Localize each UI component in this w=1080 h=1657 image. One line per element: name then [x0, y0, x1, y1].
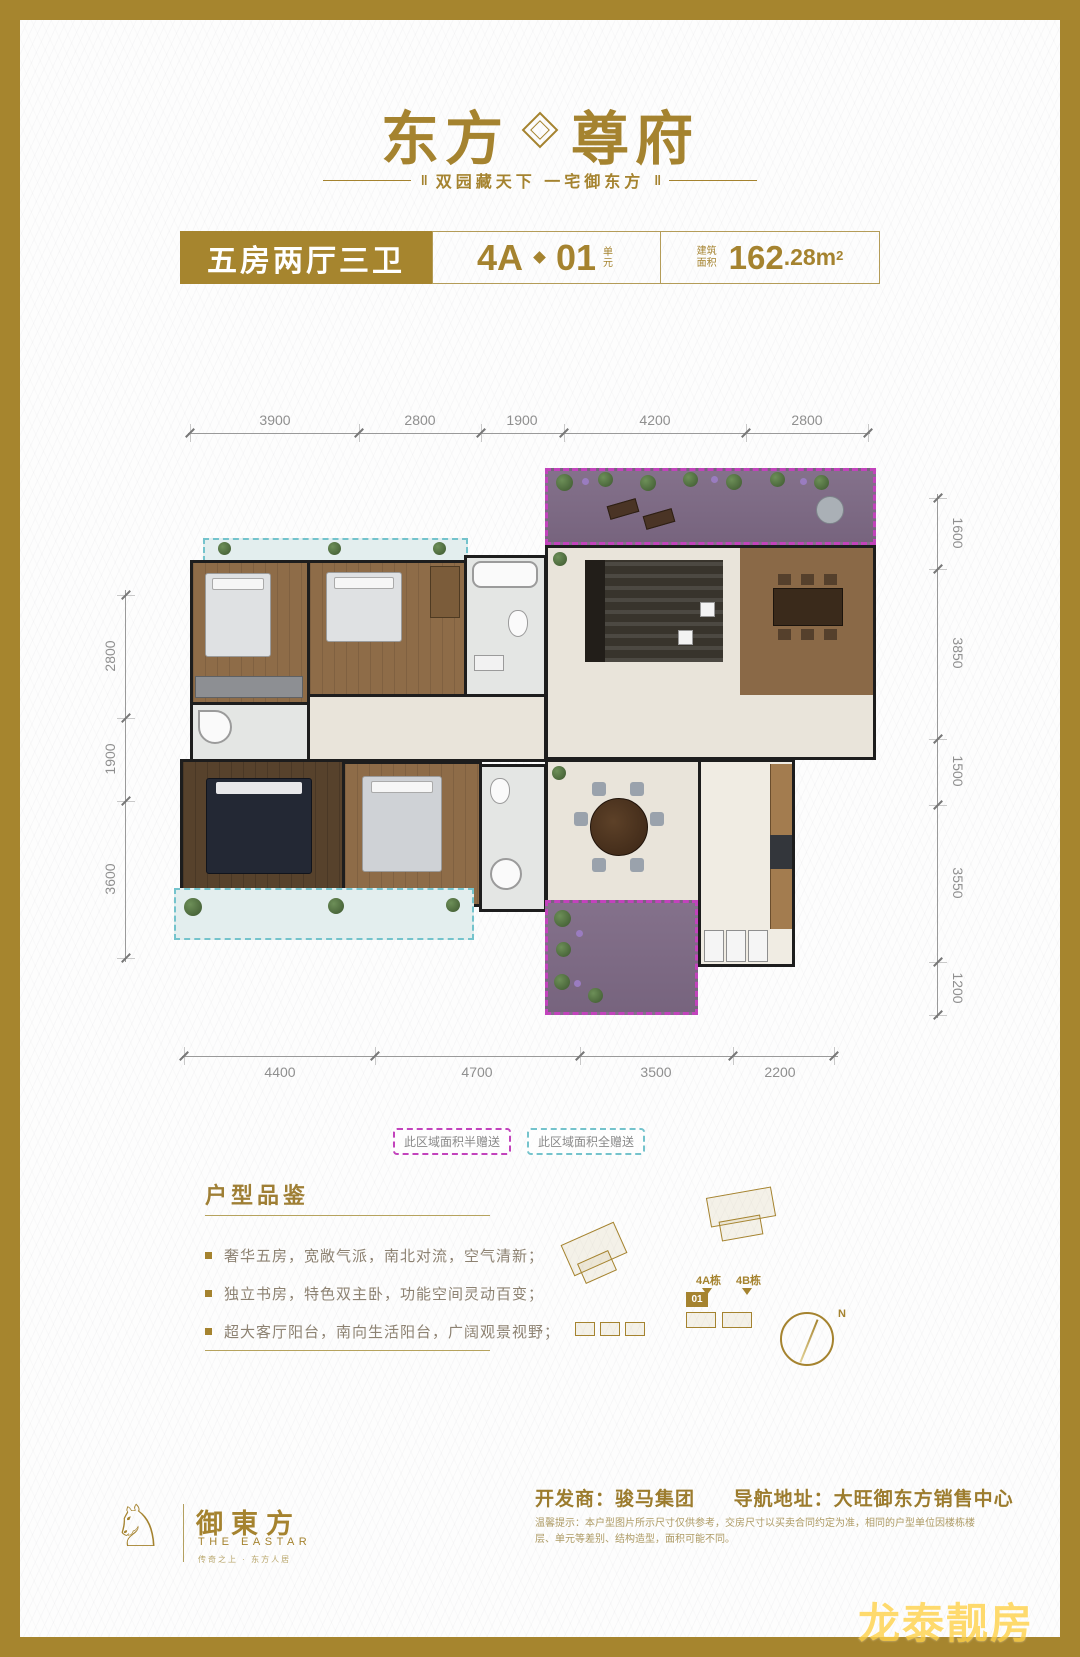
spec-box: 4A 01 单元 建筑面积 162 .28 m 2	[432, 231, 880, 284]
unit-section: 4A 01 单元	[433, 232, 661, 283]
developer-info: 开发商：骏马集团	[535, 1489, 695, 1510]
unit-label: 单元	[603, 247, 616, 269]
flower-icon	[582, 478, 589, 485]
chair	[630, 782, 644, 796]
tower-4b-label: 4B栋	[736, 1272, 761, 1288]
site-building	[686, 1312, 716, 1328]
dim-right-2: 3850	[950, 623, 966, 683]
disclaimer-text: 温馨提示：本户型图片所示尺寸仅供参考，交房尺寸以买卖合同约定为准，相同的户型单位…	[535, 1516, 987, 1548]
compass-north-label: N	[838, 1308, 846, 1320]
dim-right-4: 3550	[950, 853, 966, 913]
chair	[574, 812, 588, 826]
chair	[592, 858, 606, 872]
feature-item-1: 奢华五房，宽敞气派，南北对流，空气清新；	[205, 1245, 544, 1266]
dim-right-5: 1200	[950, 958, 966, 1018]
stove	[770, 835, 792, 869]
features-title: 户型品鉴	[205, 1178, 309, 1210]
area-int: 162	[729, 239, 784, 277]
dim-bottom-1: 4400	[250, 1064, 310, 1080]
site-building	[722, 1312, 752, 1328]
chair	[630, 858, 644, 872]
balcony-table	[816, 496, 844, 524]
plant-icon	[556, 474, 573, 491]
area-unit: m	[816, 244, 836, 271]
dim-top-1: 3900	[245, 412, 305, 428]
feature-text-1: 奢华五房，宽敞气派，南北对流，空气清新；	[224, 1245, 544, 1266]
dim-right-1: 1600	[950, 503, 966, 563]
bullet-icon	[205, 1252, 212, 1259]
pillow	[371, 781, 433, 793]
unit-01-tag: 01	[686, 1292, 708, 1307]
dim-line-bottom	[182, 1056, 838, 1057]
dining-table	[773, 588, 843, 626]
plant-icon	[554, 974, 570, 990]
brand-diamond-icon	[522, 112, 559, 149]
plant-icon	[553, 552, 567, 566]
legend-full-gift: 此区域面积全赠送	[527, 1128, 645, 1155]
dim-left-2: 1900	[102, 729, 118, 789]
tagline-rule-left	[323, 180, 411, 181]
flower-icon	[576, 930, 583, 937]
plant-icon	[552, 766, 566, 780]
compass-icon	[780, 1312, 834, 1366]
flower-icon	[711, 476, 718, 483]
navigation-info: 导航地址：大旺御东方销售中心	[734, 1489, 1014, 1510]
pillow	[216, 782, 302, 794]
layout-title: 五房两厅三卫	[180, 231, 432, 284]
plant-icon	[726, 474, 742, 490]
footer-logo-sub: 传奇之上 · 东方人居	[198, 1554, 291, 1565]
chair	[778, 629, 791, 640]
armchair	[678, 630, 693, 645]
compass-needle	[799, 1319, 818, 1362]
pillow	[212, 578, 263, 590]
chair	[824, 629, 837, 640]
feature-item-2: 独立书房，特色双主卧，功能空间灵动百变；	[205, 1283, 544, 1304]
bed	[326, 572, 402, 642]
dim-bottom-3: 3500	[626, 1064, 686, 1080]
chair	[778, 574, 791, 585]
footer-logo-en: THE EASTAR	[198, 1536, 311, 1548]
dim-bottom-4: 2200	[750, 1064, 810, 1080]
dim-bottom-2: 4700	[447, 1064, 507, 1080]
appliance	[748, 930, 768, 962]
room-bath-3	[479, 764, 547, 912]
desk	[430, 566, 460, 618]
dim-top-2: 2800	[390, 412, 450, 428]
area-label: 建筑面积	[697, 246, 721, 270]
tagline-bars-right-icon: ‖	[654, 172, 659, 188]
unit-number: 01	[556, 237, 596, 279]
plant-icon	[554, 910, 571, 927]
plant-icon	[218, 542, 231, 555]
bullet-icon	[205, 1328, 212, 1335]
plant-icon	[598, 472, 613, 487]
unit-block: 4A	[477, 237, 523, 279]
toilet	[508, 610, 528, 637]
tagline-bars-left-icon: ‖	[421, 172, 426, 188]
poster-page: 东方尊府 ‖ 双园藏天下 一宅御东方 ‖ 五房两厅三卫 4A 01 单元 建筑面…	[0, 0, 1080, 1657]
brand-name-right: 尊府	[571, 92, 699, 176]
site-building	[600, 1322, 620, 1336]
toilet	[490, 778, 510, 804]
appliance	[726, 930, 746, 962]
shower	[490, 858, 522, 890]
plant-icon	[683, 472, 698, 487]
plant-icon	[446, 898, 460, 912]
plant-icon	[328, 542, 341, 555]
dim-top-4: 4200	[625, 412, 685, 428]
unit-diamond-icon	[533, 251, 546, 264]
chair	[592, 782, 606, 796]
flower-icon	[800, 478, 807, 485]
features-rule-bottom	[205, 1350, 490, 1351]
feature-text-2: 独立书房，特色双主卧，功能空间灵动百变；	[224, 1283, 544, 1304]
corridor	[307, 694, 547, 762]
plant-icon	[640, 475, 656, 491]
brand-name-left: 东方	[381, 92, 509, 176]
dim-line-left	[125, 590, 126, 962]
flower-icon	[574, 980, 581, 987]
sink	[474, 655, 504, 671]
dim-right-3: 1500	[950, 741, 966, 801]
watermark: 龙泰靓房	[858, 1590, 1034, 1651]
tower-4a-label: 4A栋	[696, 1272, 721, 1288]
corner-tub	[198, 710, 232, 744]
dim-top-5: 2800	[777, 412, 837, 428]
plant-icon	[184, 898, 202, 916]
appliance	[704, 930, 724, 962]
chair	[801, 574, 814, 585]
site-building	[625, 1322, 645, 1336]
area-dec: .28	[784, 244, 816, 271]
plant-icon	[588, 988, 603, 1003]
features-rule-top	[205, 1215, 490, 1216]
dim-top-3: 1900	[492, 412, 552, 428]
chair	[801, 629, 814, 640]
plant-icon	[328, 898, 344, 914]
poster-inner: 东方尊府 ‖ 双园藏天下 一宅御东方 ‖ 五房两厅三卫 4A 01 单元 建筑面…	[20, 20, 1060, 1637]
bathtub	[472, 561, 538, 588]
footer-logo-divider	[183, 1504, 184, 1562]
pillow	[334, 577, 393, 589]
bed	[205, 573, 271, 657]
dim-left-3: 3600	[102, 849, 118, 909]
chair	[650, 812, 664, 826]
plant-icon	[770, 472, 785, 487]
brand-tagline: 双园藏天下 一宅御东方	[436, 168, 644, 192]
floor-plan	[178, 460, 878, 1016]
area-sup: 2	[836, 248, 843, 263]
tagline-rule-right	[669, 180, 757, 181]
horse-logo-icon: ♘	[112, 1492, 164, 1560]
site-building	[575, 1322, 595, 1336]
armchair	[700, 602, 715, 617]
dim-left-1: 2800	[102, 626, 118, 686]
feature-item-3: 超大客厅阳台，南向生活阳台，广阔观景视野；	[205, 1321, 560, 1342]
round-table	[590, 798, 648, 856]
plant-icon	[433, 542, 446, 555]
legend-half-gift: 此区域面积半赠送	[393, 1128, 511, 1155]
bed	[362, 776, 442, 872]
bullet-icon	[205, 1290, 212, 1297]
wardrobe	[195, 676, 303, 698]
plant-icon	[556, 942, 571, 957]
plant-icon	[814, 475, 829, 490]
brand-logo: 东方尊府	[0, 92, 1080, 176]
dim-line-top	[188, 433, 870, 434]
tower-4b-marker-icon	[742, 1288, 752, 1295]
brand-tagline-row: ‖ 双园藏天下 一宅御东方 ‖	[0, 168, 1080, 192]
area-section: 建筑面积 162 .28 m 2	[661, 232, 879, 283]
developer-row: 开发商：骏马集团 导航地址：大旺御东方销售中心	[535, 1484, 1014, 1511]
chair	[824, 574, 837, 585]
feature-text-3: 超大客厅阳台，南向生活阳台，广阔观景视野；	[224, 1321, 560, 1342]
balcony-left-bottom	[174, 888, 474, 940]
tv-cabinet	[585, 560, 605, 662]
dim-line-right	[937, 494, 938, 1018]
